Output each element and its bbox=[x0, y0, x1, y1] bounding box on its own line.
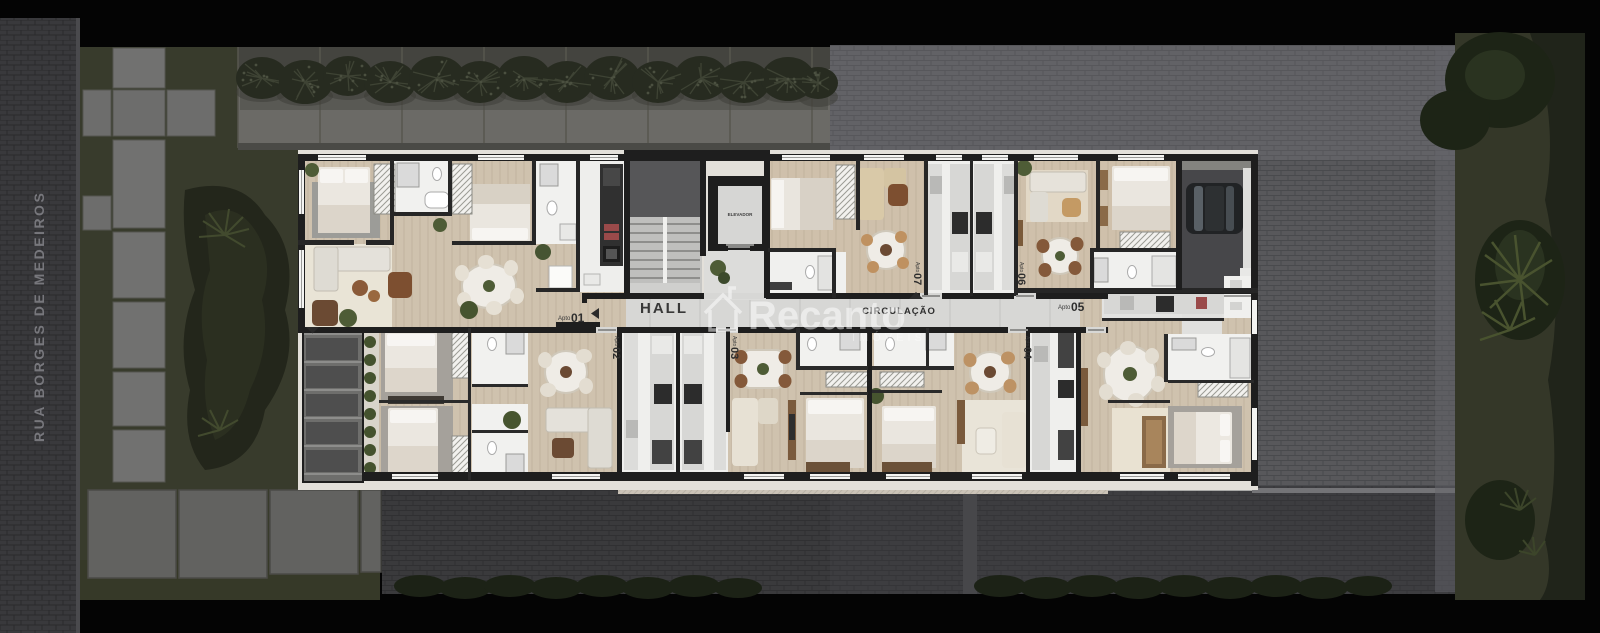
svg-text:02: 02 bbox=[610, 347, 622, 359]
svg-text:07: 07 bbox=[911, 273, 923, 285]
svg-text:04: 04 bbox=[1021, 347, 1033, 360]
svg-text:06: 06 bbox=[1015, 273, 1027, 285]
svg-text:Apto: Apto bbox=[558, 316, 571, 322]
svg-text:Apto: Apto bbox=[1018, 262, 1024, 273]
svg-text:Apto: Apto bbox=[1024, 336, 1030, 347]
svg-text:03: 03 bbox=[728, 347, 740, 359]
svg-text:ELEVADOR: ELEVADOR bbox=[728, 212, 753, 217]
svg-text:Apto: Apto bbox=[731, 336, 737, 347]
svg-text:RUA BORGES DE MEDEIROS: RUA BORGES DE MEDEIROS bbox=[31, 191, 47, 442]
svg-text:Apto: Apto bbox=[613, 336, 619, 347]
svg-text:HALL: HALL bbox=[640, 300, 688, 317]
svg-text:01: 01 bbox=[571, 311, 585, 325]
svg-text:IMÓVEIS: IMÓVEIS bbox=[852, 331, 926, 344]
svg-text:Apto: Apto bbox=[1058, 305, 1071, 311]
svg-text:Apto: Apto bbox=[914, 262, 920, 273]
svg-text:05: 05 bbox=[1071, 300, 1085, 314]
